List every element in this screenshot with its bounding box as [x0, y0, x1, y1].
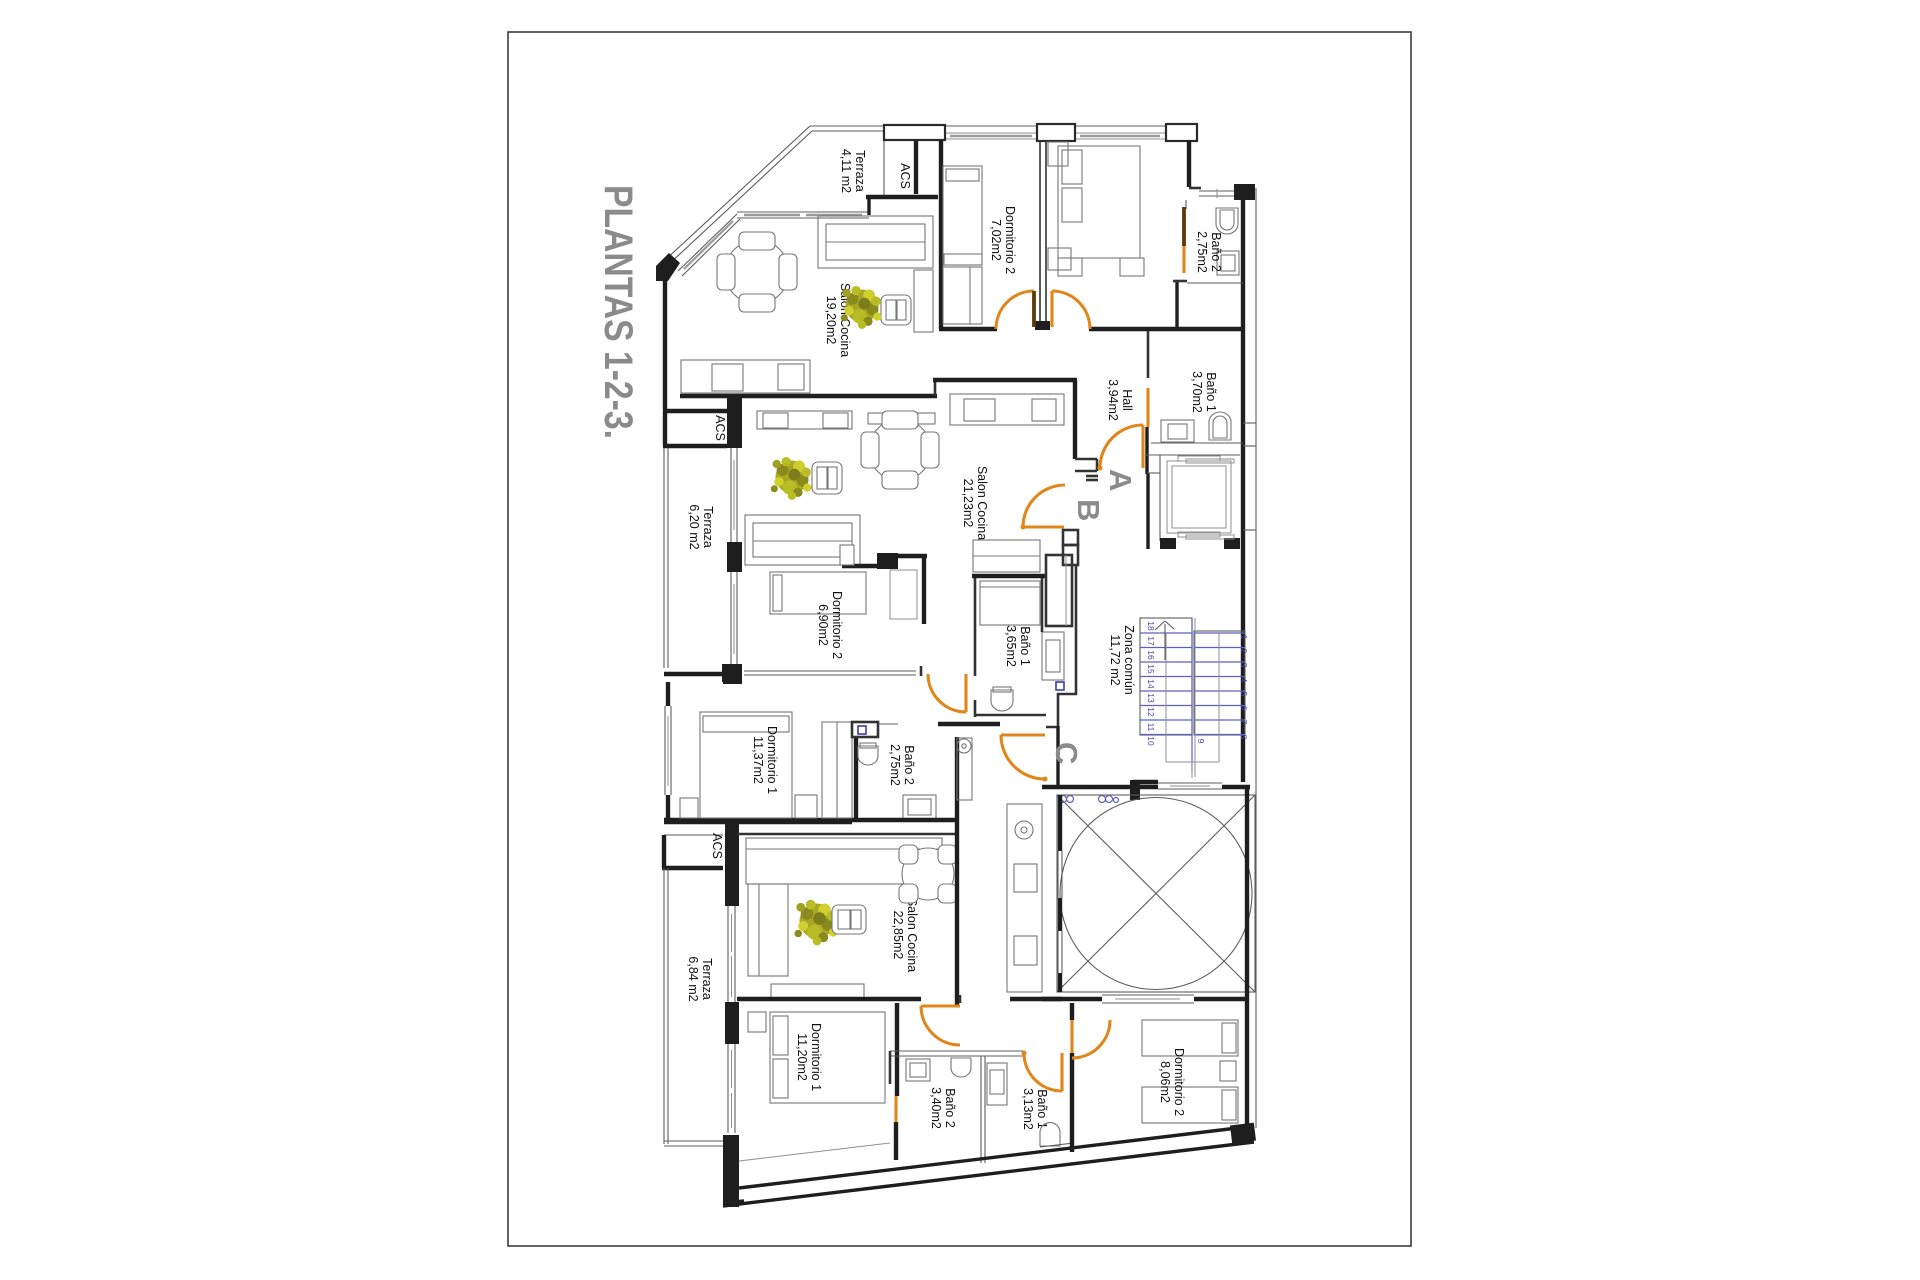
svg-text:Salon Cocina: Salon Cocina	[905, 898, 919, 972]
svg-text:11,20m2: 11,20m2	[795, 1033, 809, 1081]
svg-text:16: 16	[1146, 650, 1156, 660]
svg-text:8,06m2: 8,06m2	[1158, 1061, 1172, 1103]
svg-text:Baño 2: Baño 2	[943, 1088, 957, 1128]
svg-text:Terraza: Terraza	[701, 506, 715, 548]
svg-text:PLANTAS 1-2-3.: PLANTAS 1-2-3.	[596, 185, 640, 439]
svg-text:Baño 1: Baño 1	[1018, 626, 1032, 666]
svg-text:Terraza: Terraza	[853, 150, 867, 192]
svg-text:Baño 2: Baño 2	[1209, 232, 1223, 272]
svg-text:22,85m2: 22,85m2	[891, 911, 905, 960]
svg-text:ACS: ACS	[898, 163, 912, 189]
svg-text:1: 1	[1239, 635, 1249, 640]
svg-text:6,84 m2: 6,84 m2	[686, 956, 700, 1001]
svg-text:9: 9	[1196, 739, 1206, 744]
svg-text:4: 4	[1239, 678, 1249, 683]
svg-text:Hall: Hall	[1120, 389, 1134, 411]
svg-text:17: 17	[1146, 636, 1156, 646]
svg-text:7: 7	[1239, 720, 1249, 725]
svg-text:10: 10	[1146, 736, 1156, 746]
svg-text:C: C	[1049, 742, 1084, 764]
svg-text:Dormitorio 1: Dormitorio 1	[765, 726, 779, 794]
svg-text:2: 2	[1239, 649, 1249, 654]
svg-text:Terraza: Terraza	[700, 958, 714, 1000]
svg-text:3: 3	[1239, 663, 1249, 668]
svg-text:21,23m2: 21,23m2	[961, 479, 975, 528]
svg-text:Dormitorio 2: Dormitorio 2	[830, 591, 844, 659]
svg-text:2,75m2: 2,75m2	[888, 744, 902, 786]
svg-text:Baño 2: Baño 2	[902, 745, 916, 785]
svg-text:14: 14	[1146, 679, 1156, 689]
svg-text:Salon Cocina: Salon Cocina	[975, 466, 989, 540]
svg-text:6,20 m2: 6,20 m2	[687, 504, 701, 549]
svg-text:ACS: ACS	[710, 833, 724, 859]
svg-text:B: B	[1071, 499, 1106, 521]
svg-text:2,75m2: 2,75m2	[1195, 231, 1209, 273]
svg-text:Baño 1: Baño 1	[1204, 372, 1218, 412]
svg-text:Dormitorio 2: Dormitorio 2	[1003, 206, 1017, 274]
svg-text:7,02m2: 7,02m2	[989, 219, 1003, 261]
svg-text:11: 11	[1146, 723, 1156, 732]
svg-text:3,40m2: 3,40m2	[929, 1087, 943, 1129]
svg-text:3,94m2: 3,94m2	[1106, 379, 1120, 421]
svg-text:Dormitorio 2: Dormitorio 2	[1172, 1048, 1186, 1116]
svg-text:18: 18	[1146, 621, 1156, 631]
svg-text:11,72 m2: 11,72 m2	[1108, 634, 1122, 685]
svg-text:6: 6	[1239, 706, 1249, 711]
svg-text:3,13m2: 3,13m2	[1021, 1088, 1035, 1130]
svg-text:ACS: ACS	[713, 415, 727, 441]
svg-text:A: A	[1103, 469, 1138, 491]
svg-text:12: 12	[1146, 707, 1156, 717]
svg-text:5: 5	[1239, 692, 1249, 697]
svg-text:3,70m2: 3,70m2	[1190, 371, 1204, 413]
svg-text:15: 15	[1146, 664, 1156, 674]
svg-text:Dormitorio 1: Dormitorio 1	[809, 1023, 823, 1091]
svg-text:11,37m2: 11,37m2	[751, 736, 765, 784]
svg-text:3,65m2: 3,65m2	[1004, 625, 1018, 667]
svg-text:8: 8	[1239, 735, 1249, 740]
svg-text:19,20m2: 19,20m2	[824, 296, 838, 345]
svg-text:6,90m2: 6,90m2	[816, 604, 830, 646]
svg-text:4,11 m2: 4,11 m2	[839, 149, 853, 193]
svg-text:Zona común: Zona común	[1122, 625, 1136, 695]
svg-text:13: 13	[1146, 693, 1156, 703]
